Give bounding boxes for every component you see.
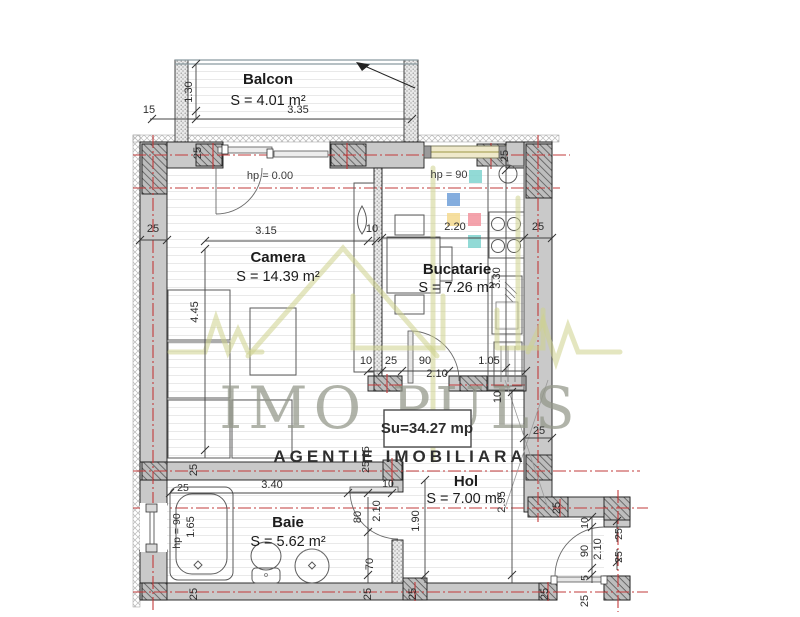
dim: 3.15 (255, 225, 276, 237)
dim: 2.10 (426, 368, 447, 380)
dim: 3.35 (287, 104, 308, 116)
balcony-railing (175, 60, 418, 64)
dim: 25 (188, 464, 200, 476)
dim: 1.30 (183, 81, 195, 102)
level-bath-window: hp = 90 (171, 513, 183, 548)
dim: 10 (382, 478, 394, 490)
room-name-baie: Baie (272, 514, 304, 531)
dim: 25 (147, 223, 159, 235)
dim: 10 (366, 223, 378, 235)
room-area-camera: S = 14.39 m² (236, 269, 320, 285)
dim: 1.90 (410, 510, 422, 531)
bath-window (140, 503, 167, 552)
camera-kitchen-partition (374, 168, 382, 376)
watermark-tagline: AGENTIE IMOBILIARA (273, 447, 526, 466)
dim: 10 (579, 517, 591, 529)
accent-square-blue (447, 193, 460, 206)
level-balcony-door: hp = 0.00 (247, 170, 293, 182)
dim: 3.40 (261, 479, 282, 491)
room-area-hol: S = 7.00 m² (426, 491, 502, 507)
room-name-balcon: Balcon (243, 71, 293, 88)
dim: 25 (192, 147, 204, 159)
dim: 1.65 (185, 516, 197, 537)
dim: 80 (352, 511, 364, 523)
floor-plan: IMO PULS AGENTIE IMOBILIARA Su=34.27 mp … (0, 0, 800, 617)
dim: 25 (385, 355, 397, 367)
dim: 4.45 (189, 301, 201, 322)
room-area-baie: S = 5.62 m² (250, 534, 326, 550)
accent-square-teal (469, 170, 482, 183)
dim: 25 (362, 588, 374, 600)
dim: 25 (177, 482, 189, 494)
dim: 15 (143, 104, 155, 116)
dim: 25 (188, 588, 200, 600)
accent-square-pink (468, 213, 481, 226)
room-area-bucatarie: S = 7.26 m² (418, 280, 494, 296)
total-area-box: Su=34.27 mp (381, 410, 473, 447)
dim: 2.10 (371, 500, 383, 521)
balcony-wall-right (404, 60, 418, 142)
dim: 25 (533, 425, 545, 437)
dim: 70 (364, 558, 376, 570)
dim: 5 (579, 575, 591, 581)
dim: 25 (407, 588, 419, 600)
dim: 90 (579, 545, 591, 557)
dim: 90 (419, 355, 431, 367)
dim: 25 (551, 502, 563, 514)
dim: 25 (360, 461, 372, 473)
total-area-label: Su=34.27 mp (381, 420, 473, 437)
dim: 2.20 (444, 221, 465, 233)
dim: 25 (579, 595, 591, 607)
dim: 25 (499, 150, 511, 162)
dim: 25 (532, 221, 544, 233)
dim: 10 (492, 391, 504, 403)
dim: 2.10 (592, 538, 604, 559)
dim: 3.30 (491, 267, 503, 288)
dim: 10 (360, 355, 372, 367)
dim: 15 (360, 446, 372, 458)
kitchen-window (424, 146, 506, 158)
dim: 25 (613, 528, 625, 540)
accent-square-teal2 (468, 235, 481, 248)
dim: 25 (539, 588, 551, 600)
dim: 25 (613, 551, 625, 563)
dim: 2.95 (496, 491, 508, 512)
dim: 1.05 (478, 355, 499, 367)
baie-hol-partition-bottom (392, 540, 403, 583)
level-kitchen-window: hp = 90 (430, 169, 467, 181)
room-name-bucatarie: Bucatarie (423, 261, 491, 278)
room-name-hol: Hol (454, 473, 478, 490)
room-name-camera: Camera (250, 249, 306, 266)
